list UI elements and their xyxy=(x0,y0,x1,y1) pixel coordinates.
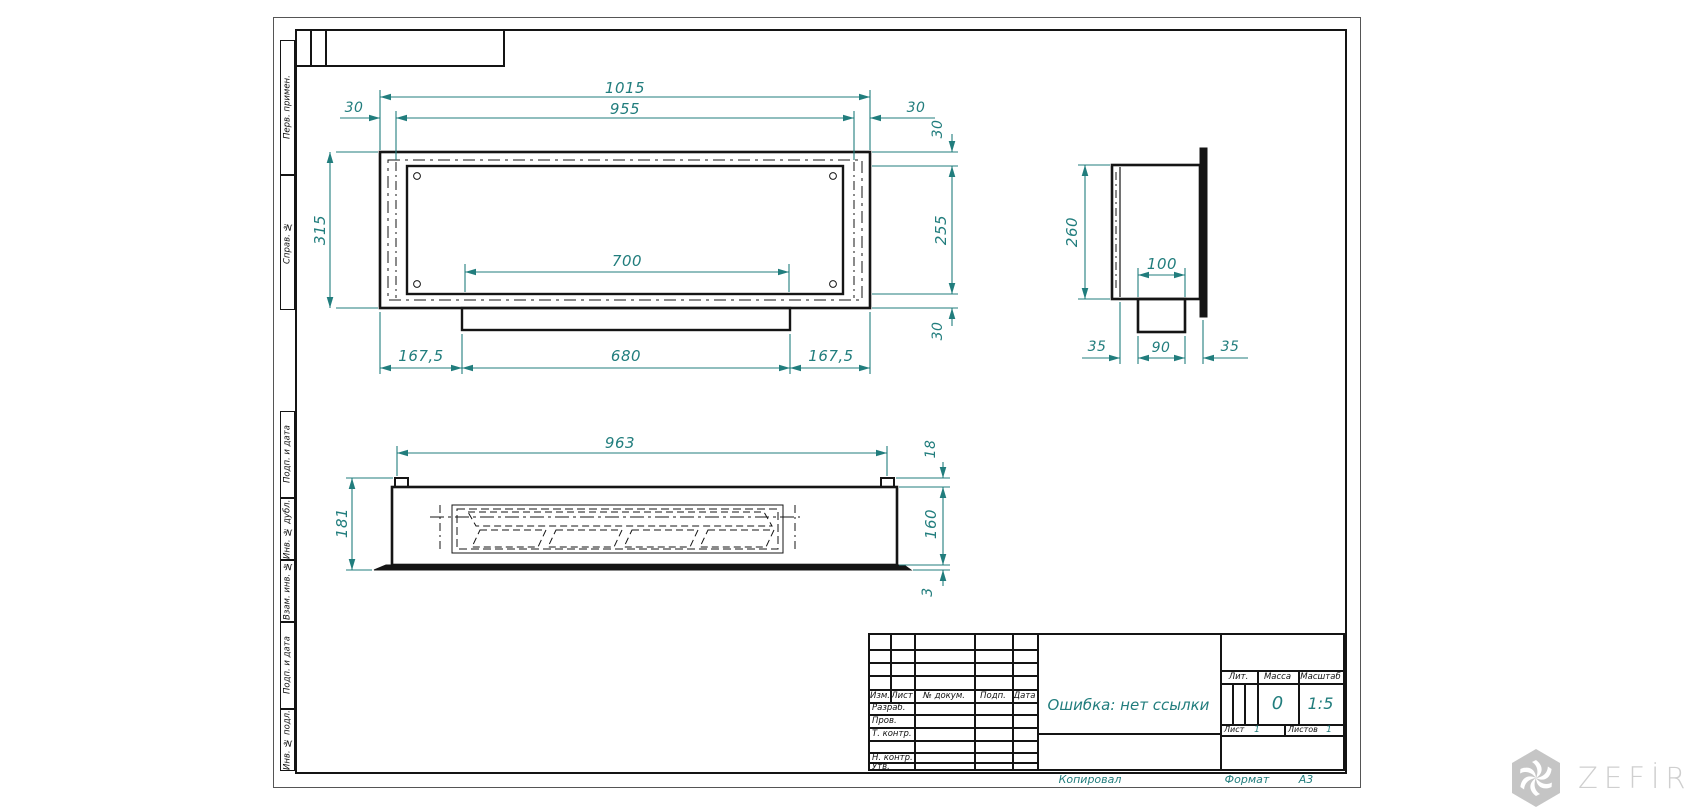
lit-label: Лит. xyxy=(1220,671,1257,683)
dim-top-wall-bottom: 30 xyxy=(930,322,946,341)
dim-side-right-offset: 35 xyxy=(1221,339,1240,355)
change-col-izm: Изм. xyxy=(870,690,890,702)
grid-line xyxy=(870,740,1037,742)
sheet-value: 1 xyxy=(1250,724,1264,735)
dim-top-lip-width: 680 xyxy=(611,347,641,365)
dim-side-spigot-width: 90 xyxy=(1152,340,1171,356)
dim-front-width: 963 xyxy=(605,434,635,452)
format-label: Формат xyxy=(1222,773,1272,786)
zefire-logo-text: ZEFİRE xyxy=(1578,761,1691,795)
grid-line xyxy=(1037,733,1220,735)
change-col-podp: Подп. xyxy=(975,690,1011,702)
dim-top-height: 315 xyxy=(311,215,329,245)
dim-front-body-height: 160 xyxy=(922,509,940,539)
dim-side-neck-width: 100 xyxy=(1147,255,1177,273)
drawing-sheet-page: Перв. примен. Справ. № Подп. и дата Инв.… xyxy=(0,0,1691,810)
drawing-geometry xyxy=(0,0,1691,810)
dim-top-offset-right: 167,5 xyxy=(808,347,853,365)
grid-line xyxy=(870,662,1037,664)
dim-side-height: 260 xyxy=(1063,217,1081,247)
zefire-logo-icon xyxy=(1508,746,1564,810)
mass-label: Масса xyxy=(1257,671,1298,683)
grid-line xyxy=(1284,724,1286,735)
change-col-dokum: № докум. xyxy=(915,690,973,702)
copied-label: Копировал xyxy=(1050,773,1130,786)
grid-line xyxy=(870,649,1037,651)
role-utv: Утв. xyxy=(872,761,914,773)
title-block: Изм. Лист № докум. Подп. Дата Разраб. Пр… xyxy=(868,633,1345,771)
format-value: А3 xyxy=(1292,773,1320,786)
grid-line xyxy=(1244,683,1246,724)
dim-top-offset-left: 167,5 xyxy=(398,347,443,365)
scale-value: 1:5 xyxy=(1298,683,1343,724)
scale-label: Масштаб xyxy=(1298,671,1343,683)
mass-value: 0 xyxy=(1257,683,1298,724)
watermark: ZEFİRE xyxy=(1508,746,1691,810)
dim-top-wall-top: 30 xyxy=(930,120,946,139)
change-col-data: Дата xyxy=(1013,690,1036,702)
sheets-value: 1 xyxy=(1322,724,1336,735)
dim-top-flange-left: 30 xyxy=(345,100,364,116)
role-t-kontr: Т. контр. xyxy=(872,728,914,740)
dim-front-height: 181 xyxy=(333,508,351,538)
dim-top-flange-right: 30 xyxy=(907,100,926,116)
role-razrab: Разраб. xyxy=(872,702,914,714)
designation-text: Ошибка: нет ссылки xyxy=(1039,680,1218,730)
sheet-label: Лист xyxy=(1224,724,1250,736)
dim-front-tab-height: 18 xyxy=(923,440,939,459)
dim-top-opening-height: 255 xyxy=(932,215,950,245)
dim-top-inner-width: 955 xyxy=(610,100,640,118)
dim-top-overall-width: 1015 xyxy=(605,79,645,97)
sheets-label: Листов xyxy=(1288,724,1322,736)
change-col-list: Лист xyxy=(891,690,913,702)
role-prov: Пров. xyxy=(872,715,914,727)
dim-top-opening-width: 700 xyxy=(612,252,642,270)
dim-side-left-offset: 35 xyxy=(1088,339,1107,355)
grid-line xyxy=(1220,635,1222,769)
dim-front-base-thickness: 3 xyxy=(920,587,936,596)
grid-line xyxy=(870,675,1037,677)
grid-line xyxy=(1232,683,1234,724)
